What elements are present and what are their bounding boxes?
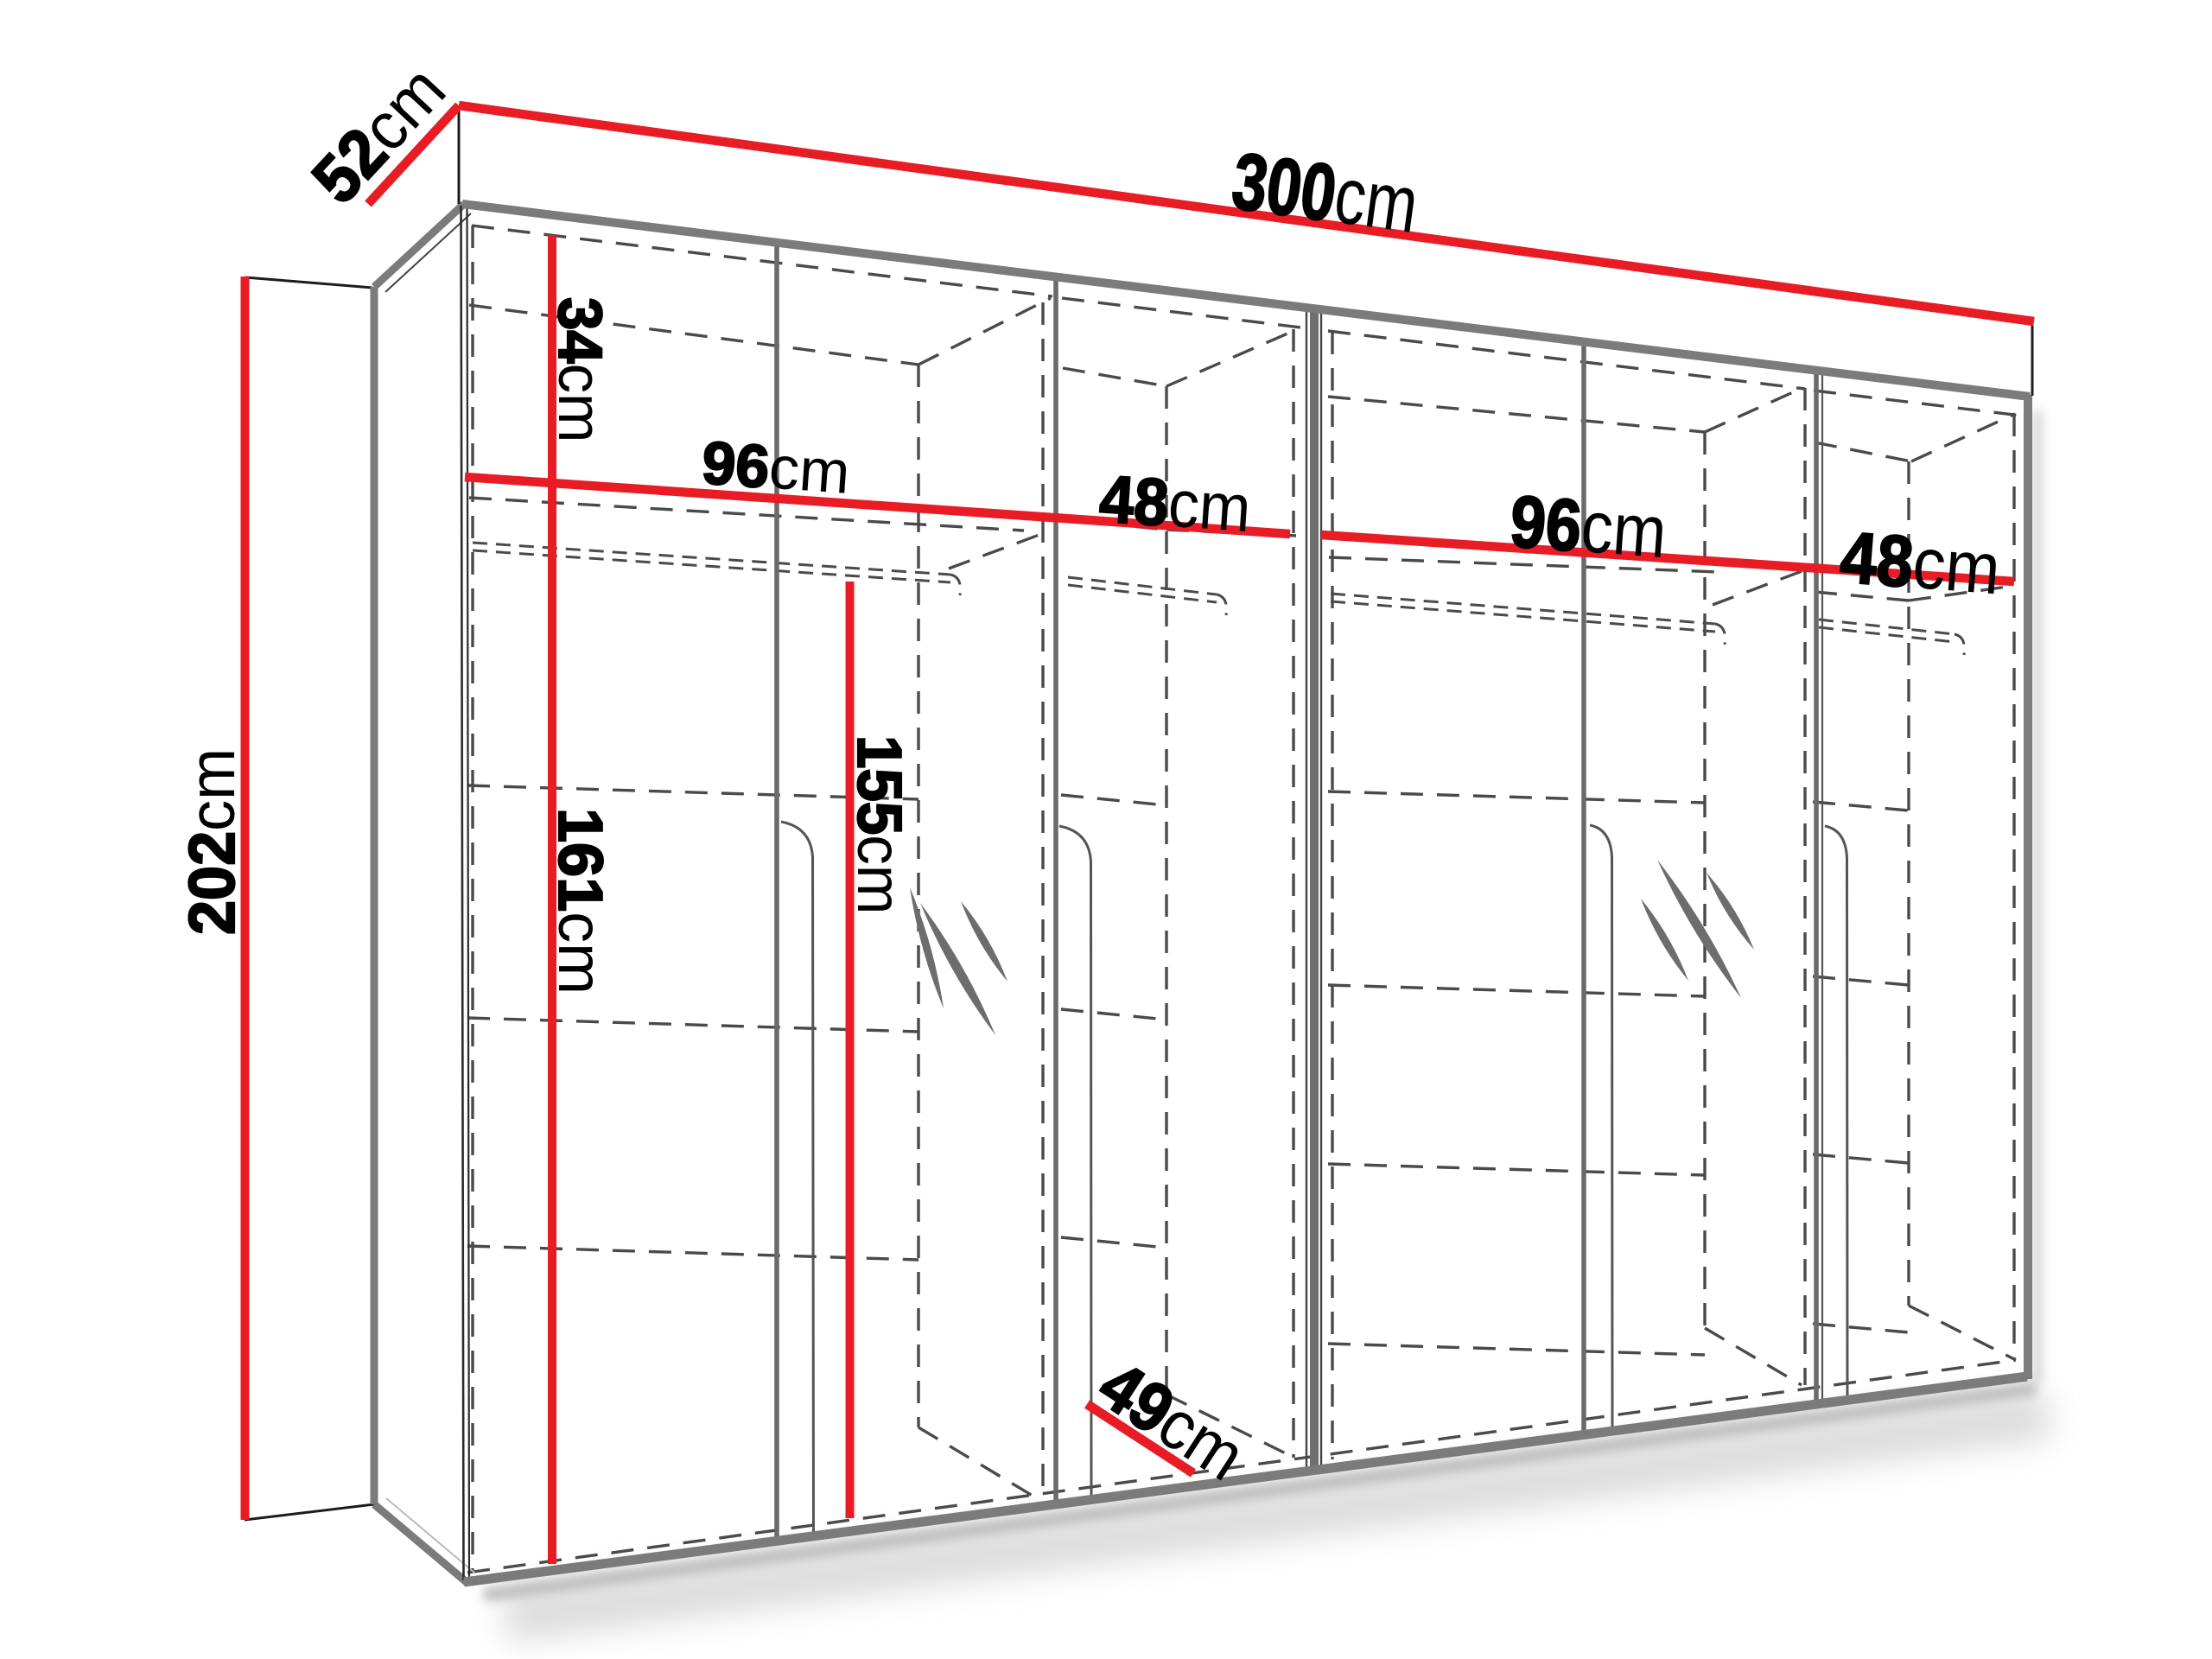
- svg-text:161cm: 161cm: [545, 808, 614, 995]
- svg-text:34cm: 34cm: [546, 297, 614, 442]
- svg-text:96cm: 96cm: [1508, 480, 1669, 573]
- svg-text:96cm: 96cm: [700, 429, 852, 506]
- svg-text:155cm: 155cm: [845, 735, 915, 914]
- svg-text:48cm: 48cm: [1838, 517, 2004, 610]
- svg-text:202cm: 202cm: [175, 748, 249, 935]
- svg-text:48cm: 48cm: [1097, 461, 1254, 546]
